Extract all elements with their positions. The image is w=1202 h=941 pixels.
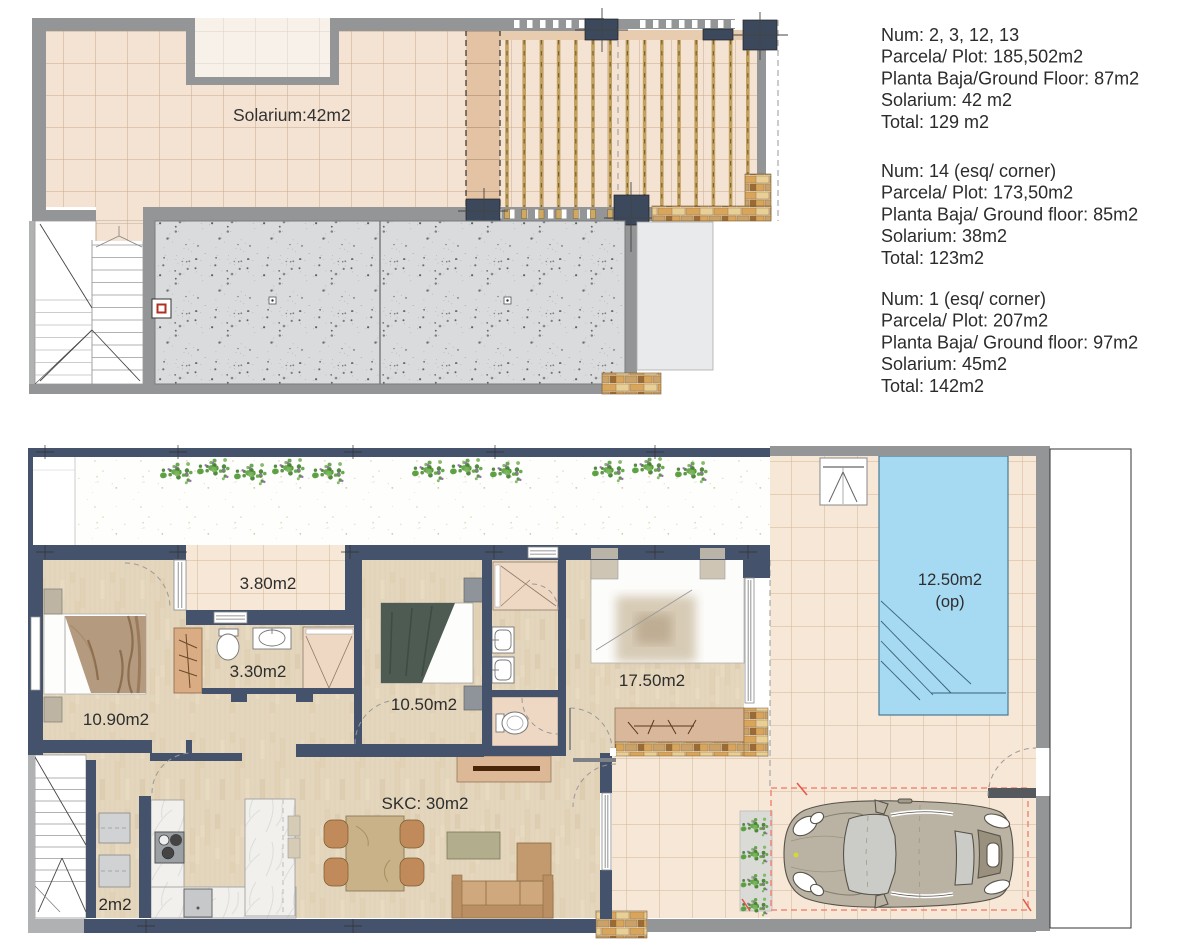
svg-text:3.30m2: 3.30m2 [230,662,287,681]
svg-text:Solarium: 38m2: Solarium: 38m2 [881,226,1007,246]
svg-text:Total: 142m2: Total: 142m2 [881,376,984,396]
svg-text:10.90m2: 10.90m2 [83,710,149,729]
svg-text:3.80m2: 3.80m2 [240,574,297,593]
svg-text:Solarium: 42 m2: Solarium: 42 m2 [881,90,1012,110]
svg-text:12.50m2: 12.50m2 [918,571,982,589]
svg-text:(op): (op) [935,593,964,611]
svg-text:Parcela/ Plot: 207m2: Parcela/ Plot: 207m2 [881,311,1048,331]
svg-text:Planta Baja/Ground Floor: 87m2: Planta Baja/Ground Floor: 87m2 [881,68,1139,88]
svg-text:Planta Baja/ Ground floor: 85m: Planta Baja/ Ground floor: 85m2 [881,204,1138,224]
svg-text:Planta Baja/ Ground floor: 97m: Planta Baja/ Ground floor: 97m2 [881,332,1138,352]
svg-text:2m2: 2m2 [98,895,131,914]
svg-text:Solarium:42m2: Solarium:42m2 [233,105,351,125]
svg-text:Num: 1 (esq/ corner): Num: 1 (esq/ corner) [881,289,1046,309]
svg-text:10.50m2: 10.50m2 [391,695,457,714]
svg-text:Solarium: 45m2: Solarium: 45m2 [881,354,1007,374]
svg-text:Total: 129 m2: Total: 129 m2 [881,112,989,132]
svg-text:Parcela/ Plot: 173,50m2: Parcela/ Plot: 173,50m2 [881,183,1073,203]
svg-text:Total: 123m2: Total: 123m2 [881,248,984,268]
svg-text:Parcela/ Plot: 185,502m2: Parcela/ Plot: 185,502m2 [881,47,1083,67]
svg-text:Num: 2, 3, 12, 13: Num: 2, 3, 12, 13 [881,25,1019,45]
svg-text:17.50m2: 17.50m2 [619,671,685,690]
svg-text:Num: 14 (esq/ corner): Num: 14 (esq/ corner) [881,161,1056,181]
svg-text:SKC: 30m2: SKC: 30m2 [382,794,469,813]
